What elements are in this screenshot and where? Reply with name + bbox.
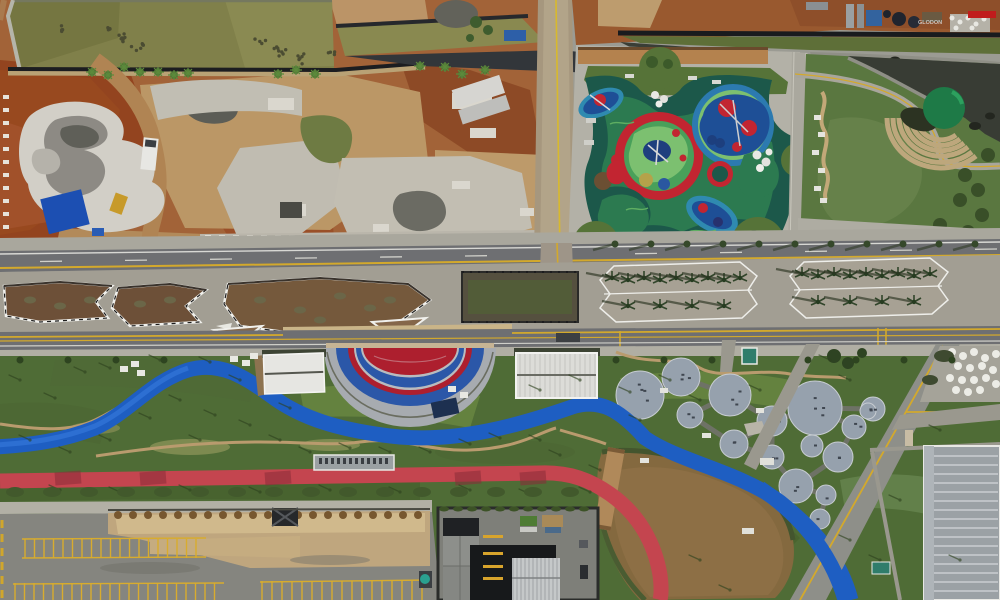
svg-text:GLODON: GLODON (918, 20, 942, 26)
